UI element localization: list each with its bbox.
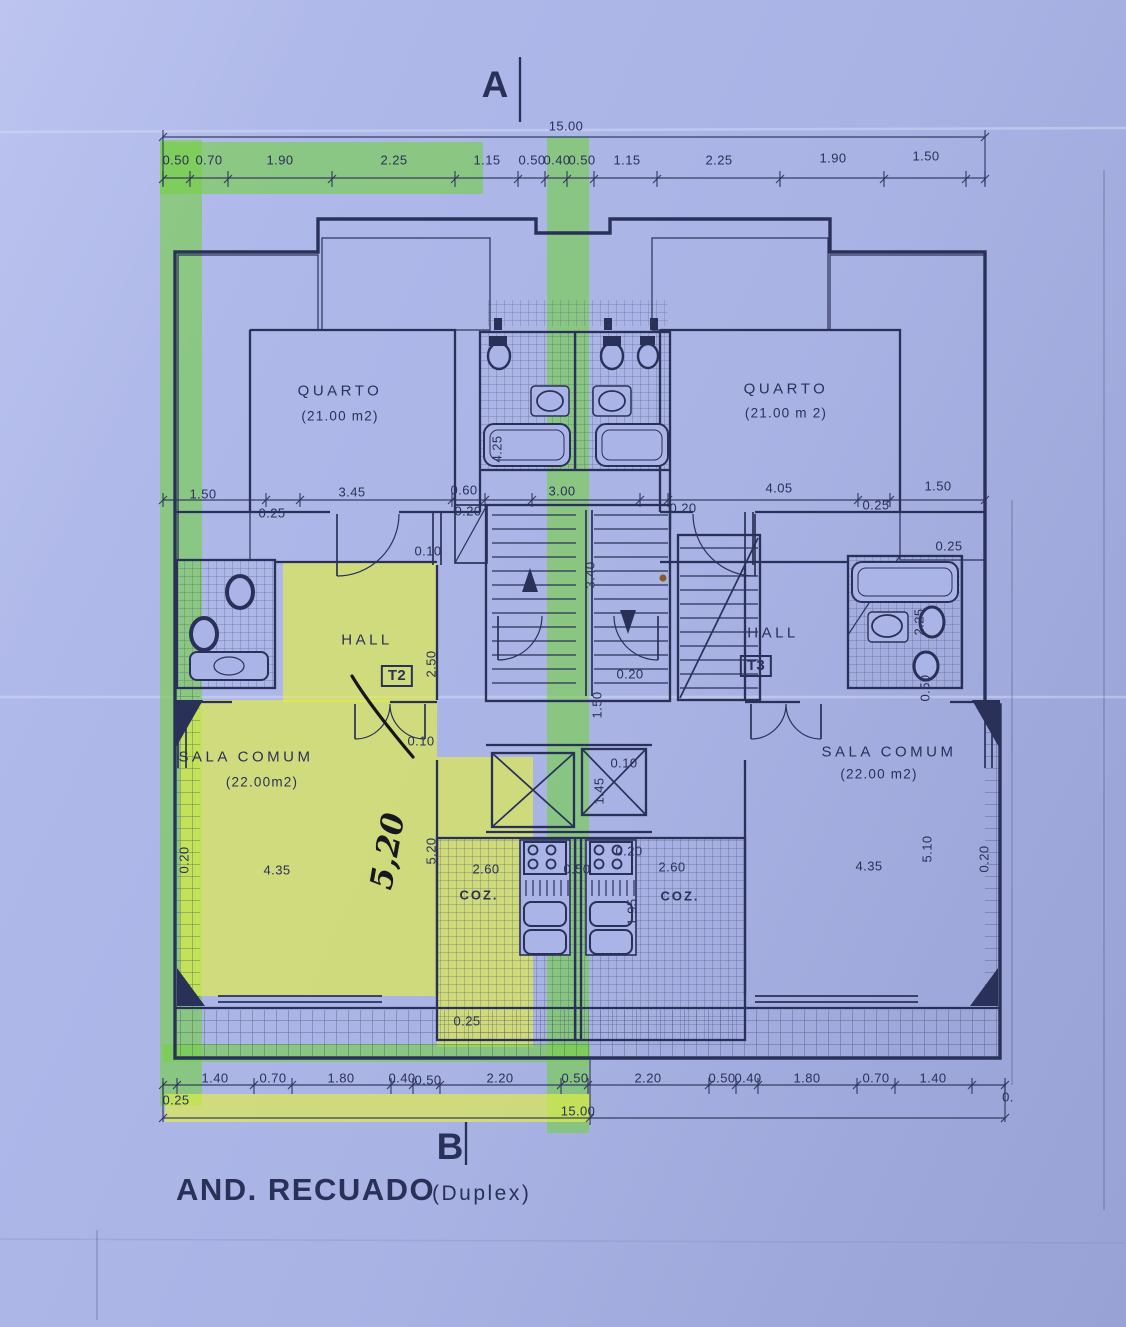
dim-top-3: 2.25 — [381, 153, 408, 168]
dim-elevator-inset: 0.10 — [611, 756, 638, 771]
room-quarto-right-area: (21.00 m 2) — [745, 406, 827, 421]
dim-bottom-8: 0.50 — [709, 1071, 736, 1086]
dim-bottom-6: 0.50 — [562, 1071, 589, 1086]
drawing-title-suffix: (Duplex) — [432, 1182, 531, 1206]
dim-elevator-width: 1.45 — [592, 778, 607, 805]
bathroom-right — [848, 556, 962, 688]
dim-top-7: 0.50 — [569, 153, 596, 168]
dim-bottom-10: 1.80 — [794, 1071, 821, 1086]
dim-bottom-9: 0.40 — [735, 1071, 762, 1086]
dim-mid-left-inset: 0.25 — [259, 506, 286, 521]
room-hall-left: HALL — [341, 632, 393, 649]
room-sala-left-area: (22.00m2) — [226, 775, 298, 790]
room-sala-right-area: (22.00 m2) — [840, 767, 917, 782]
dim-quarto-right-width: 4.05 — [766, 481, 793, 496]
dim-closet-width: 0.60 — [451, 483, 478, 498]
dim-closet-inset: 0.20 — [455, 504, 482, 519]
floorplan-scan: A 15.00 0.50 0.70 1.90 2.25 1.15 0.50 0.… — [0, 0, 1126, 1327]
dim-coz-right-width: 2.60 — [659, 860, 686, 875]
dim-coz-left-height: 5.20 — [424, 838, 439, 865]
dim-top-6: 0.40 — [544, 153, 571, 168]
dim-wall-a: 0.10 — [415, 544, 442, 559]
drawing-title: AND. RECUADO — [176, 1172, 435, 1208]
dim-sala-left-width: 4.35 — [264, 863, 291, 878]
dim-balcony-inset: 0.25 — [454, 1014, 481, 1029]
dim-center-width: 3.00 — [549, 484, 576, 499]
dim-bottom-0: 1.40 — [202, 1071, 229, 1086]
dim-mid-left-hatch: 1.50 — [190, 487, 217, 502]
dim-bath-right-height: 2.25 — [912, 609, 927, 636]
dim-bottom-2: 1.80 — [328, 1071, 355, 1086]
dim-top-10: 1.90 — [820, 151, 847, 166]
dim-sala-left-wall: 0.20 — [177, 847, 192, 874]
room-coz-left: COZ. — [459, 888, 498, 903]
section-a-marker: A — [482, 64, 509, 106]
dim-top-9: 2.25 — [706, 153, 733, 168]
dim-coz-right-inset: 0.20 — [616, 844, 643, 859]
room-quarto-right: QUARTO — [744, 381, 829, 398]
dim-bottom-3: 0.40 — [389, 1071, 416, 1086]
dim-hall-left-stair: 2.50 — [424, 651, 439, 678]
room-quarto-left-area: (21.00 m2) — [301, 409, 378, 424]
dim-stair-core-width: 3.40 — [583, 562, 598, 589]
dim-coz-right-height: 1.95 — [625, 899, 640, 926]
dim-quarto-left-width: 3.45 — [339, 485, 366, 500]
dim-quarto-left-height: 4.25 — [490, 436, 505, 463]
dim-right-hatch: 1.50 — [925, 479, 952, 494]
dim-top-1: 0.70 — [196, 153, 223, 168]
dim-coz-left-width: 2.60 — [473, 862, 500, 877]
dim-bottom-left-offset: 0.25 — [163, 1093, 190, 1108]
dim-stair-bottom-inset: 0.20 — [617, 667, 644, 682]
dim-top-0: 0.50 — [163, 153, 190, 168]
dim-bottom-5: 2.20 — [487, 1071, 514, 1086]
room-quarto-left: QUARTO — [298, 383, 383, 400]
dim-right-inset-b: 0.25 — [863, 498, 890, 513]
dim-coz-center: 0.50 — [564, 862, 591, 877]
dim-right-hatch-inset: 0.25 — [936, 539, 963, 554]
dim-bottom-1: 0.70 — [260, 1071, 287, 1086]
floorplan-drawing — [0, 0, 1126, 1327]
dim-bottom-11: 0.70 — [863, 1071, 890, 1086]
dim-right-inset-a: 0.20 — [670, 501, 697, 516]
section-b-marker: B — [437, 1126, 464, 1168]
dim-bottom-7: 2.20 — [635, 1071, 662, 1086]
dim-bottom-total: 15.00 — [561, 1104, 596, 1119]
dim-bottom-4: 0.50 — [415, 1073, 442, 1088]
bathroom-left — [177, 560, 275, 688]
dim-corridor-height: 1.50 — [590, 692, 605, 719]
dim-wall-b: 0.10 — [408, 734, 435, 749]
dim-top-5: 0.50 — [519, 153, 546, 168]
dim-bottom-right-edge: 0. — [1002, 1090, 1014, 1105]
dim-top-11: 1.50 — [913, 149, 940, 164]
unit-tag-t2: T2 — [381, 665, 413, 687]
dim-sala-right-wall: 0.20 — [977, 846, 992, 873]
dim-sala-right-width: 4.35 — [856, 859, 883, 874]
room-sala-right: SALA COMUM — [821, 744, 956, 761]
room-coz-right: COZ. — [660, 889, 699, 904]
unit-tag-t3: T3 — [740, 655, 772, 677]
dim-top-4: 1.15 — [474, 153, 501, 168]
dim-top-8: 1.15 — [614, 153, 641, 168]
room-sala-left: SALA COMUM — [178, 749, 313, 766]
dim-top-2: 1.90 — [267, 153, 294, 168]
dim-sala-right-height: 5.10 — [920, 836, 935, 863]
dim-bath-right-inset: 0.50 — [918, 675, 933, 702]
room-hall-right: HALL — [747, 625, 799, 642]
dim-top-total: 15.00 — [549, 119, 584, 134]
dim-bottom-12: 1.40 — [920, 1071, 947, 1086]
